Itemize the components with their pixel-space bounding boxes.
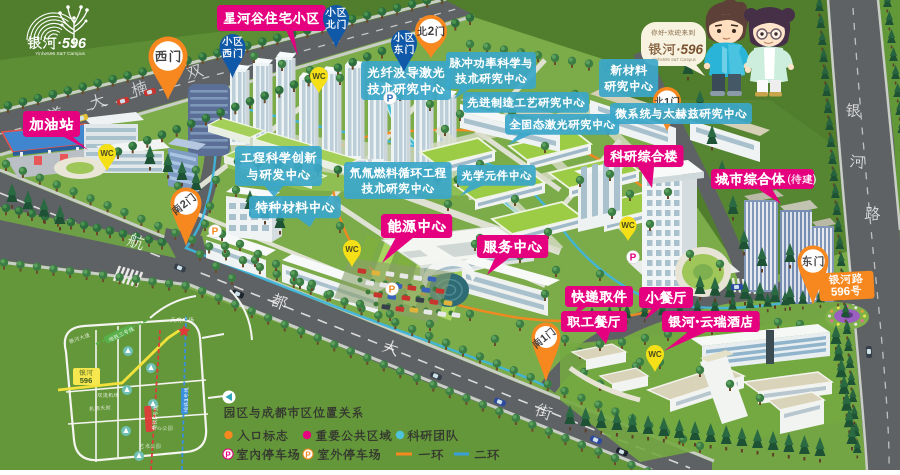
svg-text:WC: WC bbox=[345, 245, 359, 254]
svg-text:596: 596 bbox=[80, 376, 93, 385]
svg-text:WC: WC bbox=[621, 221, 635, 230]
svg-text:5: 5 bbox=[153, 416, 159, 420]
svg-text:WC: WC bbox=[312, 72, 326, 81]
svg-text:WC: WC bbox=[648, 350, 662, 359]
svg-text:P: P bbox=[389, 285, 396, 296]
svg-text:P: P bbox=[630, 253, 637, 264]
svg-text:·596: ·596 bbox=[676, 42, 704, 57]
svg-text:·596: ·596 bbox=[57, 36, 87, 52]
svg-text:P: P bbox=[212, 227, 219, 238]
svg-text:WC: WC bbox=[100, 149, 114, 158]
svg-text:2: 2 bbox=[428, 26, 434, 38]
svg-text:P: P bbox=[225, 450, 231, 459]
svg-text:Yinhe596 S&T Campus: Yinhe596 S&T Campus bbox=[652, 57, 696, 62]
svg-text:596: 596 bbox=[831, 286, 851, 299]
svg-text:1: 1 bbox=[184, 398, 190, 401]
svg-text:P: P bbox=[305, 450, 311, 459]
svg-text:Yinhe596 S&T Campus: Yinhe596 S&T Campus bbox=[35, 51, 85, 57]
svg-text:P: P bbox=[387, 94, 394, 105]
